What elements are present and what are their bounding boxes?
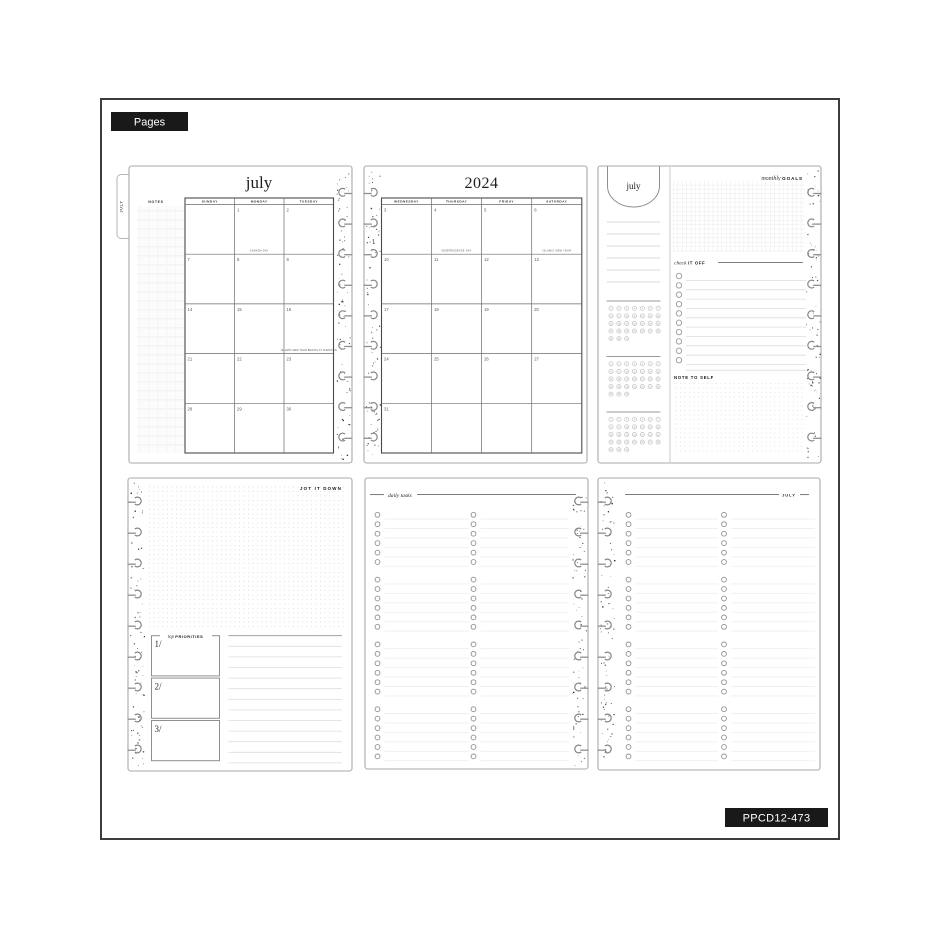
svg-text:13: 13 — [534, 257, 539, 262]
svg-text:daily tasks: daily tasks — [388, 493, 412, 499]
svg-text:ISLAMIC NEW YEAR BEGINS AT SUN: ISLAMIC NEW YEAR BEGINS AT SUNDOWN — [281, 349, 337, 352]
svg-text:PPCD12-473: PPCD12-473 — [743, 813, 811, 825]
svg-text:WEDNESDAY: WEDNESDAY — [394, 200, 419, 204]
svg-text:14: 14 — [188, 307, 193, 312]
svg-text:THURSDAY: THURSDAY — [446, 200, 468, 204]
svg-text:23: 23 — [287, 357, 292, 362]
svg-text:NOTES: NOTES — [148, 200, 163, 204]
svg-text:24: 24 — [384, 357, 389, 362]
svg-text:11: 11 — [434, 257, 439, 262]
svg-text:CANADA DAY: CANADA DAY — [250, 250, 269, 253]
svg-text:18: 18 — [434, 307, 439, 312]
svg-text:28: 28 — [188, 406, 193, 411]
svg-text:SATURDAY: SATURDAY — [546, 200, 567, 204]
svg-text:17: 17 — [384, 307, 389, 312]
svg-text:july: july — [625, 181, 641, 191]
svg-text:20: 20 — [534, 307, 539, 312]
svg-text:TUESDAY: TUESDAY — [300, 200, 319, 204]
svg-text:12: 12 — [484, 257, 489, 262]
svg-text:july: july — [245, 173, 273, 192]
svg-text:INDEPENDENCE DAY: INDEPENDENCE DAY — [441, 250, 471, 253]
svg-text:19: 19 — [484, 307, 489, 312]
svg-text:2024: 2024 — [465, 175, 499, 192]
svg-text:2/: 2/ — [155, 681, 163, 691]
svg-text:26: 26 — [484, 357, 489, 362]
svg-text:30: 30 — [287, 406, 292, 411]
svg-text:15: 15 — [237, 307, 242, 312]
svg-text:FRIDAY: FRIDAY — [499, 200, 514, 204]
svg-text:1/: 1/ — [155, 639, 163, 649]
svg-text:JOT IT DOWN: JOT IT DOWN — [300, 486, 342, 491]
svg-text:27: 27 — [534, 357, 539, 362]
svg-text:10: 10 — [384, 257, 389, 262]
svg-text:16: 16 — [287, 307, 292, 312]
svg-text:29: 29 — [237, 406, 242, 411]
svg-text:SUNDAY: SUNDAY — [202, 200, 218, 204]
svg-text:25: 25 — [434, 357, 439, 362]
svg-text:31: 31 — [384, 406, 389, 411]
svg-text:22: 22 — [237, 357, 242, 362]
svg-text:MONDAY: MONDAY — [251, 200, 268, 204]
svg-text:21: 21 — [188, 357, 193, 362]
svg-text:JULY: JULY — [120, 200, 124, 212]
svg-text:Pages: Pages — [134, 117, 166, 129]
svg-text:ISLAMIC NEW YEAR: ISLAMIC NEW YEAR — [542, 250, 571, 253]
svg-text:NOTE TO SELF: NOTE TO SELF — [674, 375, 714, 380]
svg-text:3/: 3/ — [155, 724, 163, 734]
svg-text:JULY: JULY — [782, 493, 796, 498]
